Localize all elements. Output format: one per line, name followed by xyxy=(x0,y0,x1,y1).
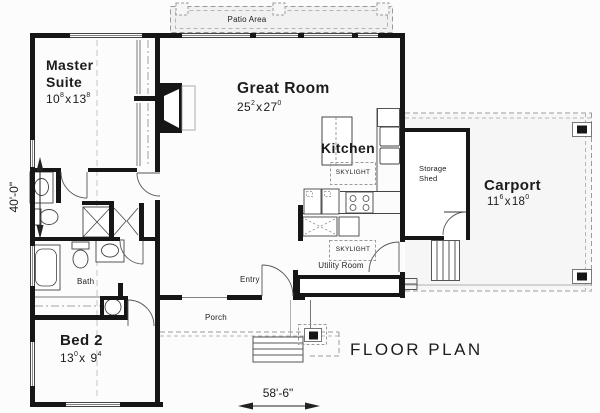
utility-room-label: Utility Room xyxy=(318,261,364,271)
porch-steps xyxy=(253,337,303,362)
hall-closet-bifold-doors xyxy=(114,208,138,235)
bed2-label: Bed 2 130x94 xyxy=(60,332,103,365)
bed2-closet xyxy=(35,297,100,306)
bathtub xyxy=(32,245,60,290)
overall-height-dimension: 40'-0" xyxy=(7,165,21,229)
carport-stairs xyxy=(432,241,460,281)
porch-label: Porch xyxy=(205,313,227,323)
master-closet xyxy=(137,40,148,166)
refrigerator xyxy=(380,127,400,164)
carport-dimensions: 116x180 xyxy=(487,196,541,210)
page-title: FLOOR PLAN xyxy=(350,340,483,360)
great-room-name: Great Room xyxy=(237,80,330,99)
shower xyxy=(83,207,111,237)
entry-label: Entry xyxy=(240,275,260,285)
great-room-label: Great Room 252x270 xyxy=(237,80,330,114)
carport-name: Carport xyxy=(484,177,541,195)
bed2-name: Bed 2 xyxy=(60,332,103,350)
master-suite-dimensions: 108x138 xyxy=(46,92,94,106)
master-suite-name-line2: Suite xyxy=(46,74,94,91)
storage-shed xyxy=(402,128,470,240)
master-toilet xyxy=(33,209,58,225)
bed2-dimensions: 130x94 xyxy=(60,351,103,365)
range xyxy=(346,192,373,213)
great-room-dimensions: 252x270 xyxy=(237,100,330,114)
bath-label: Bath xyxy=(77,277,94,287)
patio-outline xyxy=(170,3,393,33)
carport-label: Carport 116x180 xyxy=(484,177,541,210)
overall-width-dimension: 58'-6" xyxy=(263,386,294,400)
skylight-utility-label: SKYLIGHT xyxy=(336,246,371,254)
patio-area-label: Patio Area xyxy=(228,15,267,25)
kitchen-label: Kitchen xyxy=(321,140,375,157)
storage-shed-label: Storage Shed xyxy=(419,164,447,184)
bath2-toilet xyxy=(72,242,89,268)
water-heater xyxy=(105,299,121,315)
skylight-kitchen-label: SKYLIGHT xyxy=(336,169,371,177)
dimension-width-arrow xyxy=(238,403,320,410)
master-suite-label: Master Suite 108x138 xyxy=(46,57,94,106)
master-suite-name-line1: Master xyxy=(46,57,94,74)
fireplace xyxy=(158,83,195,133)
utility-deck xyxy=(298,277,417,295)
floor-plan: Patio Area Master Suite 108x138 Great Ro… xyxy=(0,0,600,413)
